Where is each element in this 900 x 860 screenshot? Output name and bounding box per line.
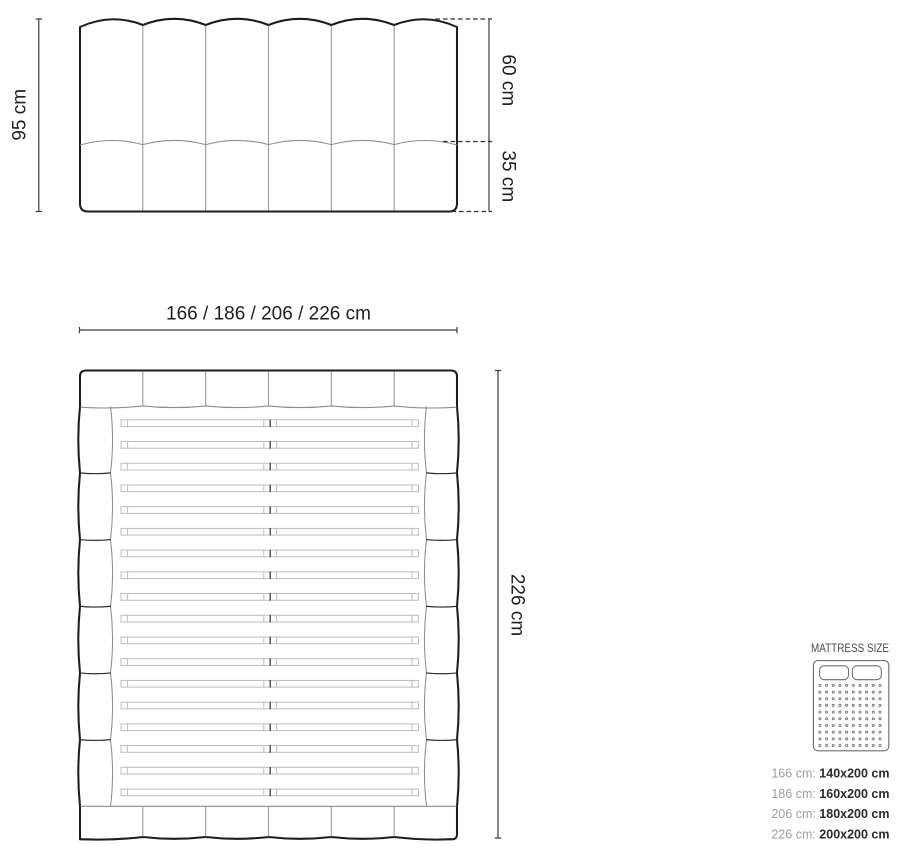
svg-text:206 cm: 180x200 cm: 206 cm: 180x200 cm: [771, 807, 889, 821]
svg-text:60 cm: 60 cm: [497, 54, 518, 106]
svg-text:95 cm: 95 cm: [10, 89, 31, 141]
svg-text:166 cm: 140x200 cm: 166 cm: 140x200 cm: [771, 767, 889, 781]
svg-text:226 cm: 226 cm: [506, 574, 527, 636]
svg-text:186 cm: 160x200 cm: 186 cm: 160x200 cm: [771, 787, 889, 801]
svg-text:35 cm: 35 cm: [497, 150, 518, 202]
svg-text:226 cm: 200x200 cm: 226 cm: 200x200 cm: [771, 828, 889, 842]
svg-text:MATTRESS SIZE: MATTRESS SIZE: [811, 643, 889, 655]
svg-text:166 / 186 / 206 / 226 cm: 166 / 186 / 206 / 226 cm: [166, 304, 371, 325]
